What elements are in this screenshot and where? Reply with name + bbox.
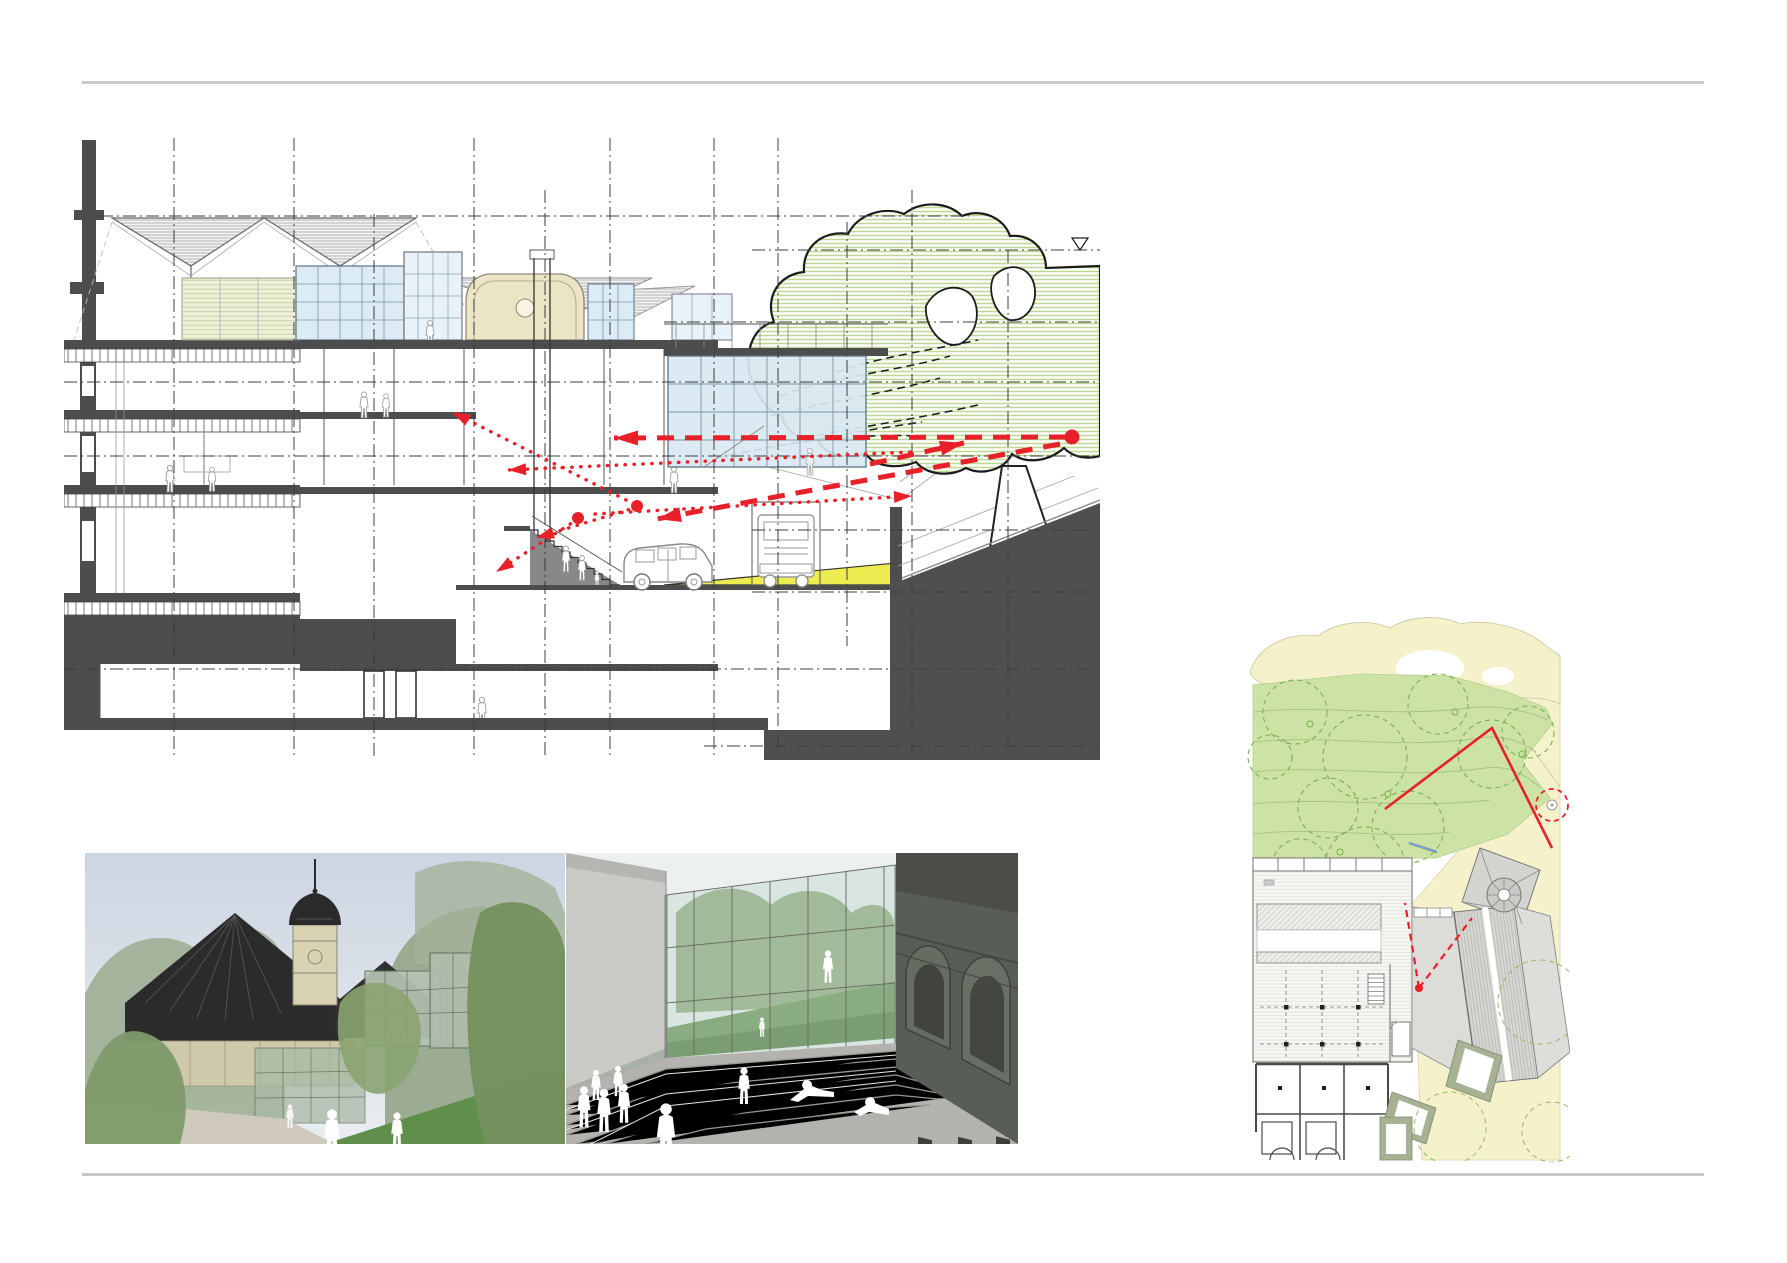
glass-volume-roof-left xyxy=(296,266,404,340)
delivery-van xyxy=(624,544,712,590)
louver-clad-volume xyxy=(182,278,296,340)
glass-volume-roof-small xyxy=(588,284,634,340)
bottom-divider-rule xyxy=(82,1173,1704,1176)
plan-skylight xyxy=(1257,904,1381,930)
top-divider-rule xyxy=(82,81,1704,84)
presentation-sheet xyxy=(0,0,1787,1263)
rooftop-pavilions xyxy=(74,218,732,346)
site-plan xyxy=(1240,612,1570,1162)
grand-stair xyxy=(504,516,622,587)
rendering-steps-view xyxy=(566,853,1018,1144)
butterfly-roof-center xyxy=(264,218,416,266)
clock-tower xyxy=(293,925,337,1005)
glass-pavilion-right xyxy=(672,294,732,340)
existing-building-section xyxy=(64,140,300,615)
glass-hall xyxy=(666,865,896,1058)
retaining-wall xyxy=(890,507,902,587)
delivery-truck xyxy=(752,502,820,587)
butterfly-roof-left xyxy=(112,218,264,266)
plan-new-building-roof xyxy=(1253,858,1412,1062)
rendering-chateau-view xyxy=(85,853,565,1144)
building-section-drawing xyxy=(64,126,1100,766)
